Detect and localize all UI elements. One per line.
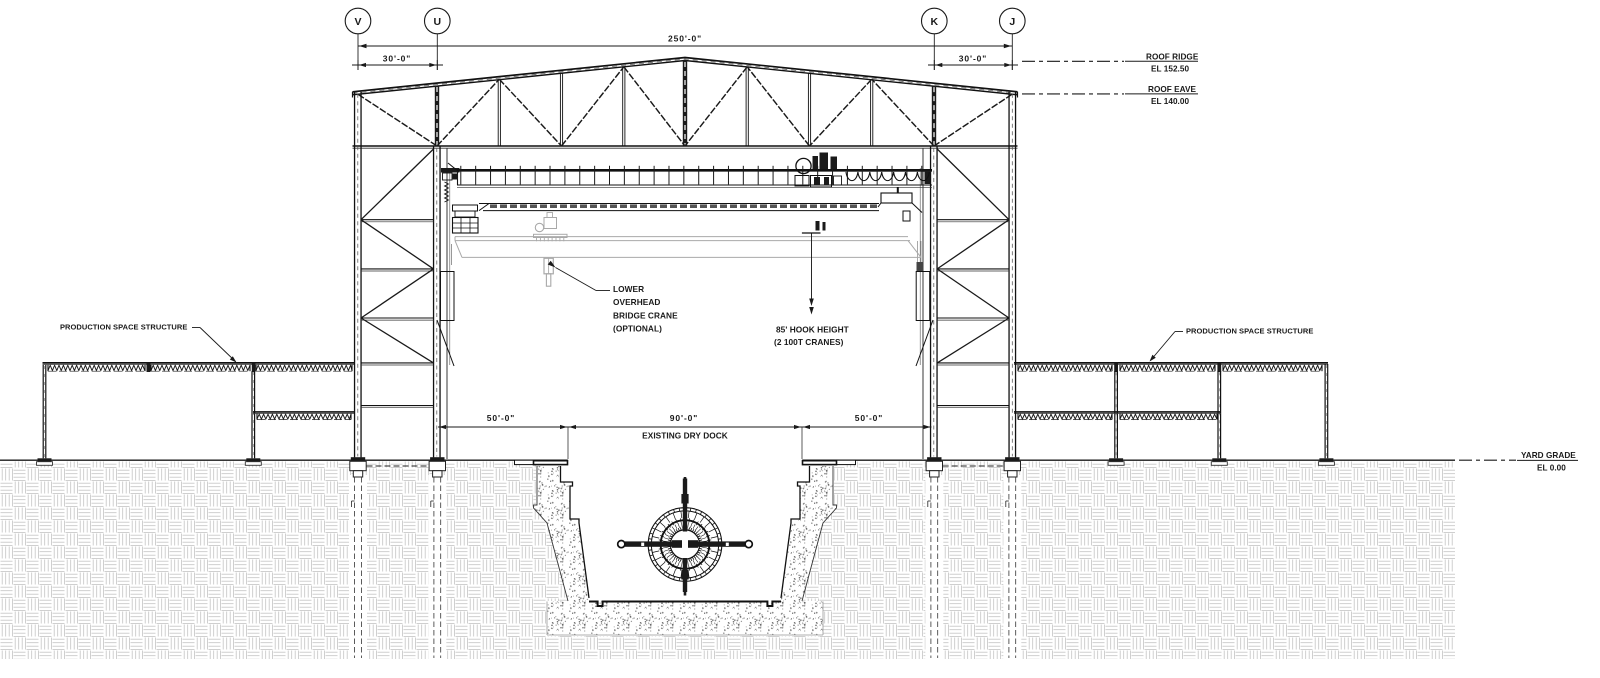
- svg-text:(2 100T CRANES): (2 100T CRANES): [774, 337, 844, 347]
- svg-text:90'-0": 90'-0": [670, 413, 698, 423]
- svg-text:V: V: [354, 16, 361, 28]
- svg-text:EXISTING DRY DOCK: EXISTING DRY DOCK: [642, 431, 728, 441]
- svg-text:OVERHEAD: OVERHEAD: [613, 297, 660, 307]
- svg-text:EL 0.00: EL 0.00: [1537, 463, 1566, 472]
- svg-text:PRODUCTION SPACE STRUCTURE: PRODUCTION SPACE STRUCTURE: [60, 323, 187, 332]
- svg-text:50'-0": 50'-0": [487, 413, 515, 423]
- svg-text:PRODUCTION SPACE STRUCTURE: PRODUCTION SPACE STRUCTURE: [1186, 327, 1313, 336]
- svg-text:ROOF EAVE: ROOF EAVE: [1148, 85, 1197, 94]
- svg-text:(OPTIONAL): (OPTIONAL): [613, 324, 662, 334]
- svg-text:30'-0": 30'-0": [383, 54, 411, 64]
- svg-text:U: U: [433, 16, 441, 28]
- svg-text:250'-0": 250'-0": [668, 34, 702, 44]
- svg-text:30'-0": 30'-0": [959, 54, 987, 64]
- svg-text:ROOF RIDGE: ROOF RIDGE: [1146, 52, 1199, 61]
- svg-text:EL 152.50: EL 152.50: [1151, 64, 1189, 73]
- svg-text:85' HOOK HEIGHT: 85' HOOK HEIGHT: [776, 325, 849, 335]
- svg-text:YARD GRADE: YARD GRADE: [1521, 451, 1576, 460]
- svg-text:50'-0": 50'-0": [855, 413, 883, 423]
- svg-text:K: K: [930, 16, 938, 28]
- svg-text:LOWER: LOWER: [613, 284, 644, 294]
- svg-text:BRIDGE CRANE: BRIDGE CRANE: [613, 310, 678, 320]
- svg-text:EL 140.00: EL 140.00: [1151, 97, 1189, 106]
- svg-text:J: J: [1009, 16, 1015, 28]
